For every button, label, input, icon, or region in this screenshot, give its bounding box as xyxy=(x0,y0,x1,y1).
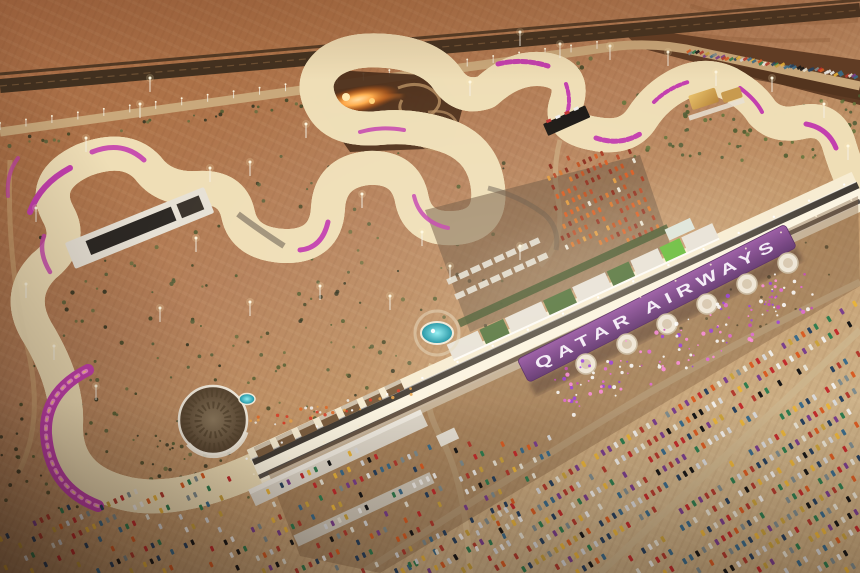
round-pavilion xyxy=(179,386,247,456)
grandstand-west xyxy=(65,187,215,269)
aerial-photo: QATAR AIRWAYS xyxy=(0,0,860,573)
fountain-jet xyxy=(431,329,435,333)
small-pool xyxy=(239,394,255,405)
circuit-scene: QATAR AIRWAYS xyxy=(0,0,860,573)
